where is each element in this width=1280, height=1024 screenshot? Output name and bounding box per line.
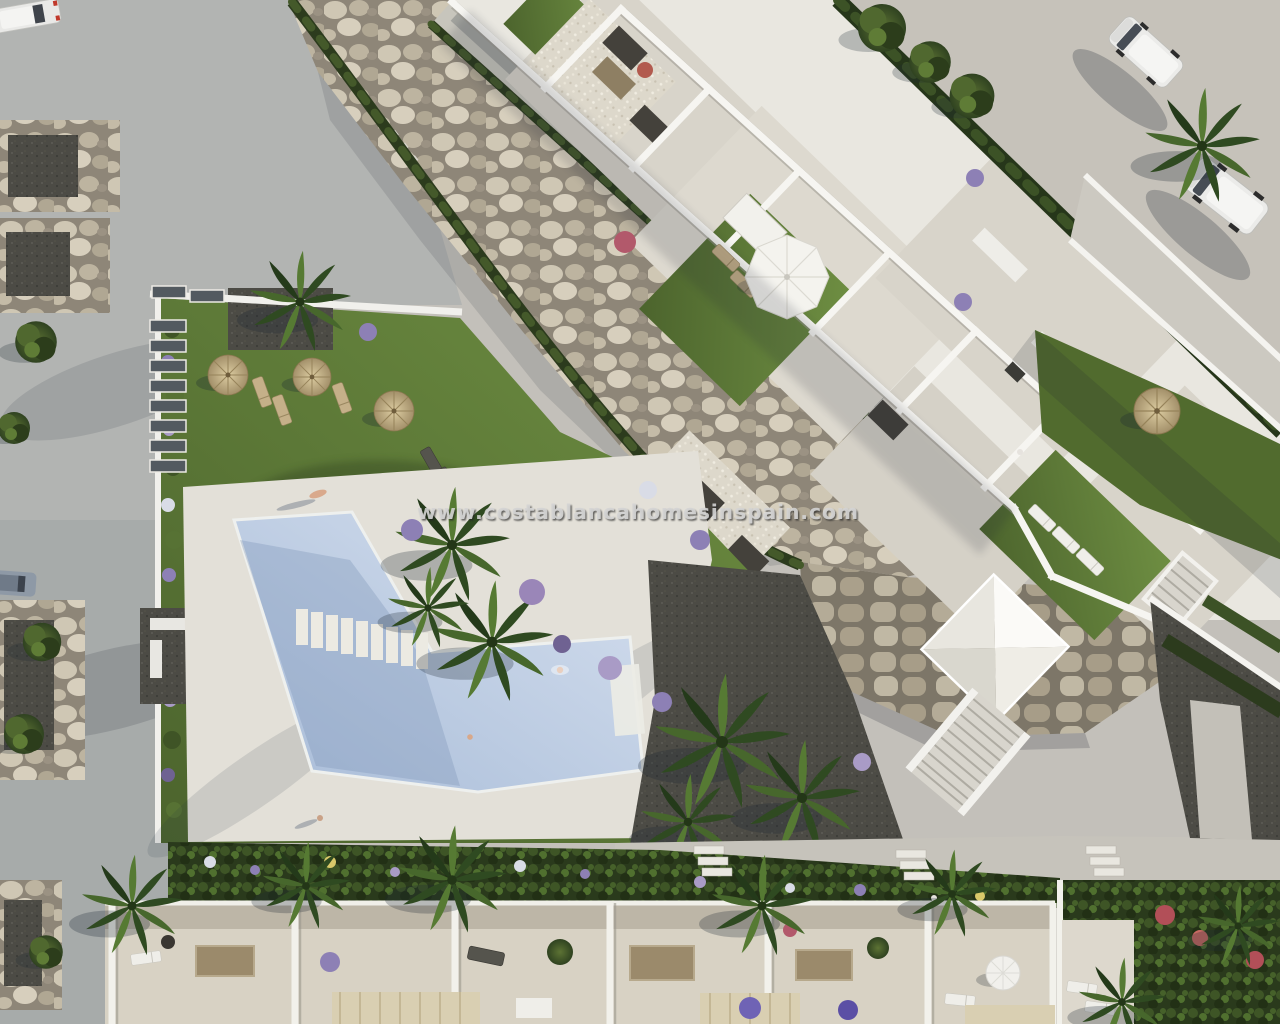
corner-garden — [1058, 880, 1280, 1024]
flower-clump — [553, 635, 571, 653]
watermark-text: www.costablancahomesinspain.com — [417, 500, 859, 524]
bench — [150, 640, 162, 678]
pink-flower-bush — [614, 231, 636, 253]
parked-car-blue — [0, 569, 37, 597]
person — [1017, 449, 1023, 455]
walker — [317, 815, 323, 821]
pergola-roof — [332, 992, 480, 1024]
dining-table — [630, 946, 694, 980]
flower-pot — [838, 1000, 858, 1020]
potted-tree — [547, 939, 573, 965]
flower-clump — [519, 579, 545, 605]
flower-pot — [320, 952, 340, 972]
pergola-roof — [965, 1005, 1055, 1024]
red-coral-plant — [1155, 905, 1175, 925]
flower-clump — [690, 530, 710, 550]
flower-pot — [739, 997, 761, 1019]
flower-clump — [598, 656, 622, 680]
aerial-render-image: www.costablancahomesinspain.com — [0, 0, 1280, 1024]
dining-table — [796, 950, 852, 980]
flower-clump — [853, 753, 871, 771]
purple-planter — [954, 293, 972, 311]
dining-table — [196, 946, 254, 976]
planter-dark — [161, 935, 175, 949]
flower-clump — [652, 692, 672, 712]
side-table — [516, 998, 552, 1018]
swimmer — [467, 734, 473, 740]
flower-clump — [639, 481, 657, 499]
red-planter — [637, 62, 653, 78]
purple-planter — [966, 169, 984, 187]
potted-tree — [867, 937, 889, 959]
flower-clump — [359, 323, 377, 341]
